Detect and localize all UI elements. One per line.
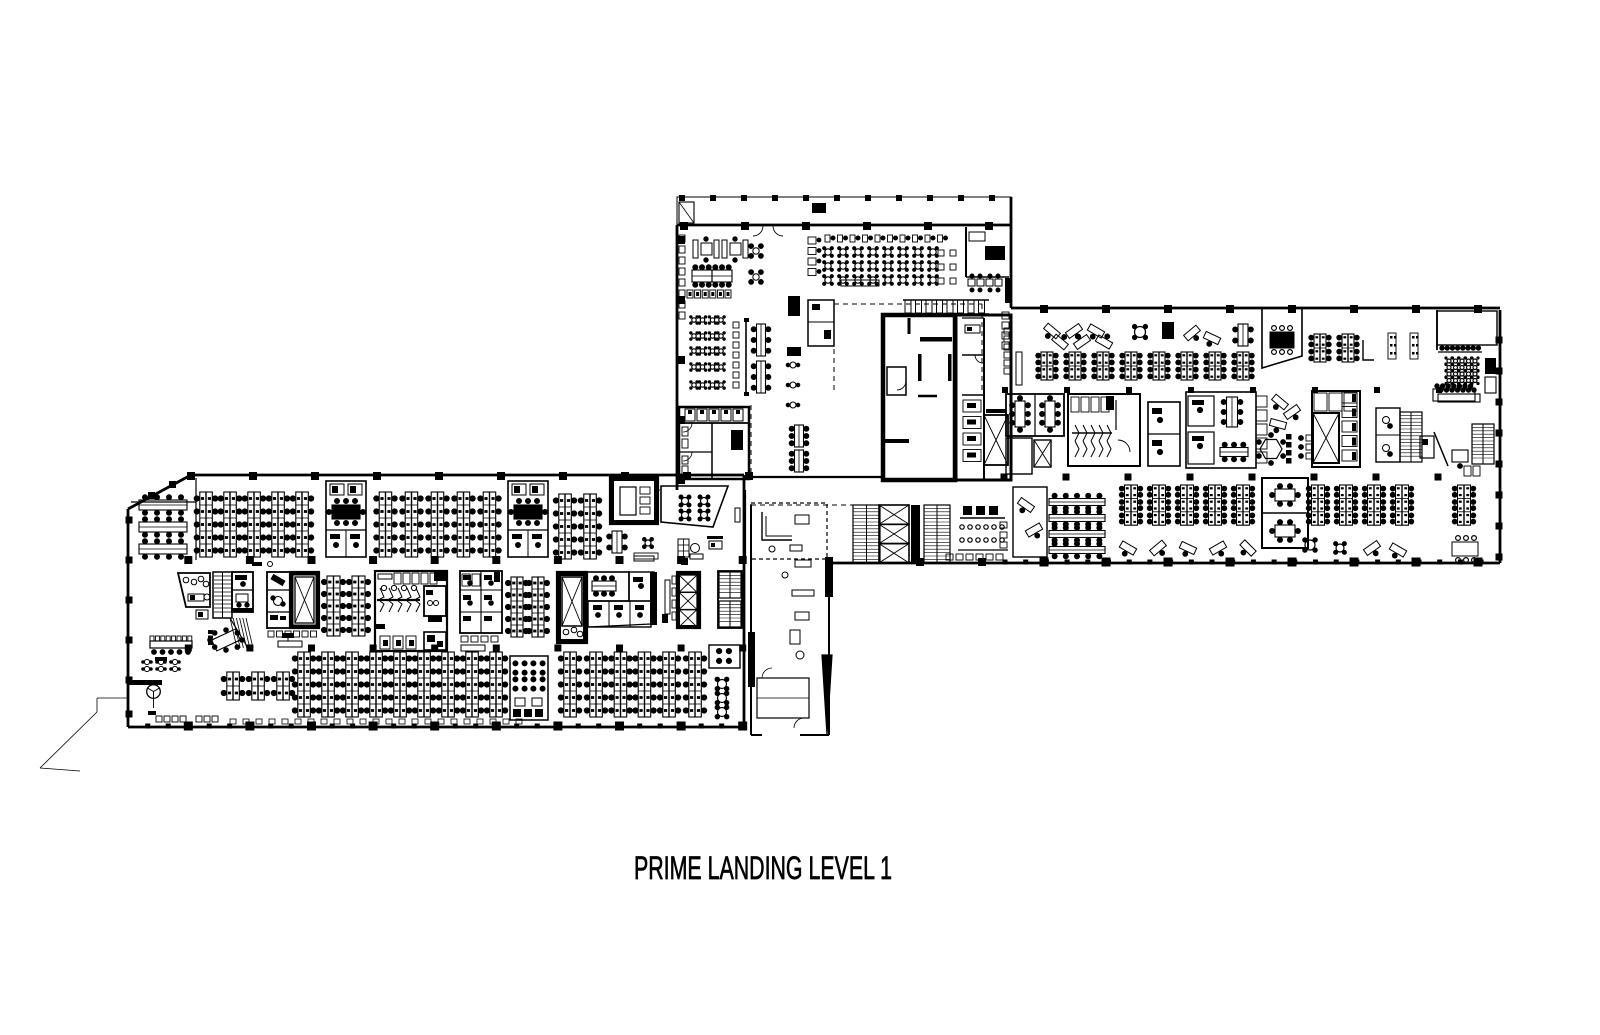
svg-text:PRIME LANDING LEVEL 1: PRIME LANDING LEVEL 1 [634,850,892,886]
